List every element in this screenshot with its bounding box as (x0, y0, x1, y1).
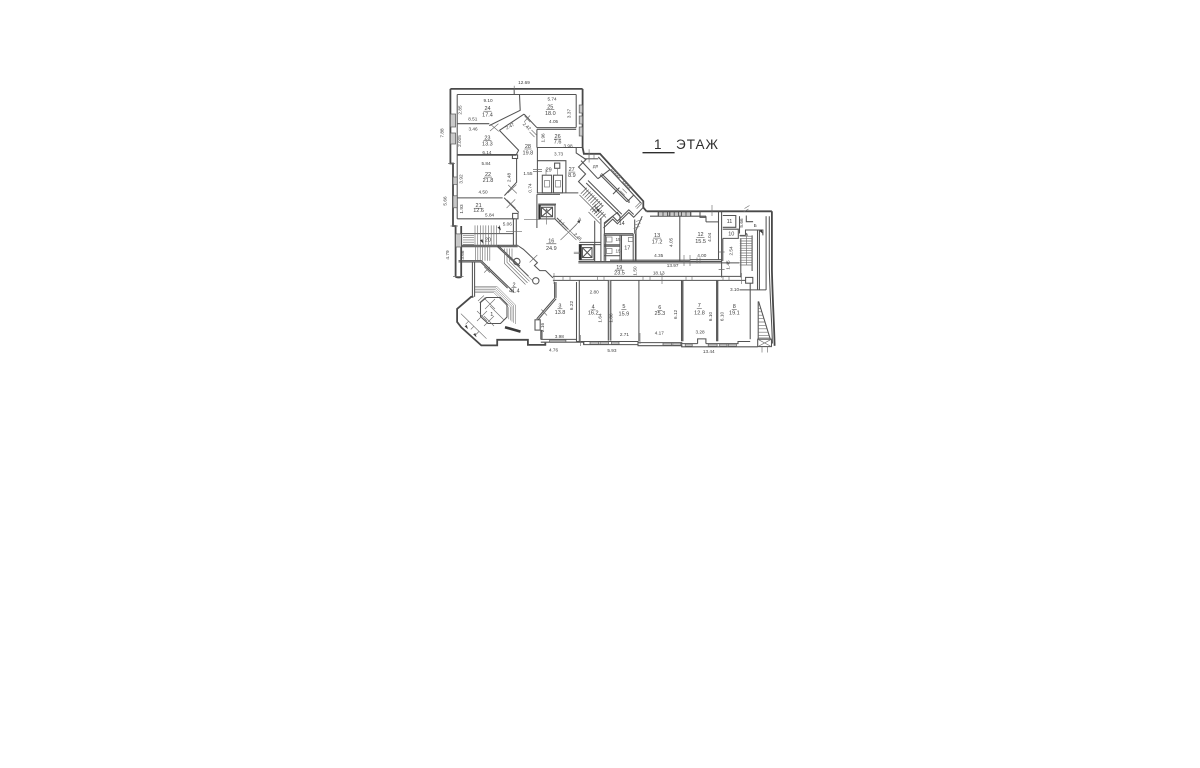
svg-text:0.74: 0.74 (528, 183, 533, 193)
svg-text:12.8: 12.8 (694, 310, 705, 316)
svg-text:10: 10 (728, 231, 734, 237)
svg-text:5.93: 5.93 (607, 348, 617, 353)
svg-text:13.44: 13.44 (703, 349, 715, 354)
svg-text:25.3: 25.3 (655, 311, 666, 317)
svg-text:5.84: 5.84 (485, 213, 495, 218)
svg-text:5.66: 5.66 (443, 196, 448, 206)
svg-text:1.55: 1.55 (523, 171, 533, 176)
svg-text:21.8: 21.8 (483, 178, 494, 184)
svg-text:4.76: 4.76 (549, 347, 559, 352)
svg-text:41.4: 41.4 (509, 288, 520, 294)
svg-text:3.10: 3.10 (730, 287, 740, 292)
svg-text:17: 17 (624, 246, 630, 252)
svg-text:17.2: 17.2 (652, 239, 663, 245)
svg-text:24.9: 24.9 (546, 246, 557, 252)
svg-text:4.35: 4.35 (654, 253, 664, 258)
svg-text:6.12: 6.12 (673, 309, 678, 319)
svg-text:15.5: 15.5 (695, 239, 706, 245)
svg-text:3.66: 3.66 (460, 250, 465, 260)
svg-text:19.1: 19.1 (729, 310, 740, 316)
svg-text:7.6: 7.6 (554, 140, 562, 146)
svg-text:2.54: 2.54 (729, 246, 734, 256)
svg-text:8.51: 8.51 (468, 117, 478, 122)
svg-text:3.73: 3.73 (554, 152, 564, 157)
svg-text:23.5: 23.5 (614, 270, 625, 276)
svg-text:2.85: 2.85 (458, 105, 463, 115)
svg-text:1.64: 1.64 (598, 313, 603, 323)
svg-text:ЭТАЖ: ЭТАЖ (676, 137, 719, 152)
svg-text:5.74: 5.74 (547, 96, 557, 101)
svg-text:5.06: 5.06 (503, 222, 513, 227)
svg-text:18.0: 18.0 (545, 111, 556, 117)
svg-text:1.50: 1.50 (633, 266, 638, 276)
svg-text:6.10: 6.10 (708, 312, 713, 322)
svg-text:20: 20 (485, 238, 491, 244)
svg-text:18.13: 18.13 (653, 271, 665, 276)
svg-text:3.28: 3.28 (695, 330, 705, 335)
svg-text:11: 11 (727, 219, 733, 225)
svg-text:1: 1 (654, 137, 663, 152)
svg-text:4.05: 4.05 (549, 119, 559, 124)
svg-text:14: 14 (619, 221, 625, 227)
svg-text:12.69: 12.69 (518, 80, 530, 85)
svg-text:7.88: 7.88 (440, 128, 445, 138)
svg-text:1.45: 1.45 (726, 260, 731, 270)
svg-text:3.46: 3.46 (468, 127, 478, 132)
svg-text:17.4: 17.4 (482, 113, 493, 119)
svg-text:1.86: 1.86 (608, 313, 613, 323)
svg-text:Б: Б (754, 223, 757, 228)
svg-text:4.05: 4.05 (669, 237, 674, 247)
svg-text:4.17: 4.17 (655, 331, 665, 336)
svg-text:9.10: 9.10 (483, 98, 493, 103)
svg-text:15: 15 (616, 237, 622, 242)
svg-text:29: 29 (546, 167, 552, 173)
svg-text:4.04: 4.04 (707, 232, 712, 242)
svg-text:13.3: 13.3 (482, 142, 493, 148)
svg-text:3.98: 3.98 (555, 334, 565, 339)
svg-text:4.79: 4.79 (445, 250, 450, 260)
svg-text:дп: дп (593, 164, 599, 169)
svg-text:2.16: 2.16 (540, 323, 545, 333)
svg-text:4.50: 4.50 (478, 190, 488, 195)
svg-text:1.93: 1.93 (459, 204, 464, 214)
svg-text:15.9: 15.9 (619, 311, 630, 317)
svg-text:2.48: 2.48 (506, 173, 511, 183)
svg-text:6.22: 6.22 (569, 301, 574, 311)
svg-text:12.6: 12.6 (473, 208, 484, 214)
svg-text:3.98: 3.98 (563, 143, 573, 148)
svg-text:2.80: 2.80 (590, 289, 600, 294)
svg-text:1.96: 1.96 (541, 133, 546, 143)
svg-text:3.92: 3.92 (459, 174, 464, 184)
svg-text:5.84: 5.84 (481, 161, 491, 166)
svg-text:4.00: 4.00 (697, 253, 707, 258)
svg-text:5.66: 5.66 (739, 218, 744, 228)
svg-text:1: 1 (490, 312, 493, 318)
svg-text:2.005: 2.005 (457, 135, 462, 147)
svg-text:6.14: 6.14 (482, 150, 492, 155)
svg-text:15: 15 (616, 249, 622, 254)
svg-text:19.8: 19.8 (523, 151, 534, 157)
svg-text:2.71: 2.71 (620, 332, 630, 337)
svg-text:6.10: 6.10 (719, 312, 724, 322)
svg-text:13.97: 13.97 (667, 263, 679, 268)
svg-text:13.8: 13.8 (555, 310, 566, 316)
svg-text:3.37: 3.37 (566, 109, 571, 119)
svg-text:8.9: 8.9 (568, 173, 576, 179)
